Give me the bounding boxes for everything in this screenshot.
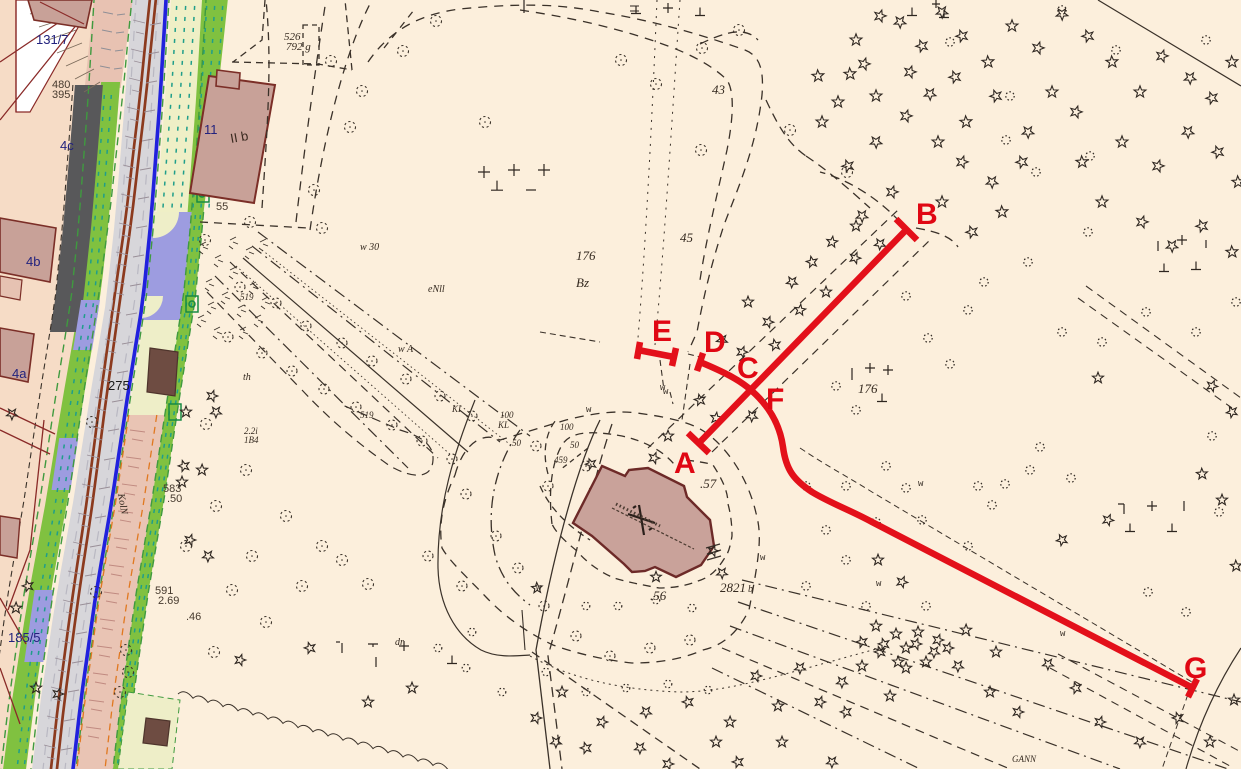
svg-text:eNll: eNll: [428, 284, 445, 295]
svg-text:1B4: 1B4: [244, 435, 259, 445]
svg-text:50: 50: [512, 438, 522, 448]
svg-text:w: w: [876, 579, 882, 589]
svg-text:55: 55: [216, 201, 228, 213]
svg-text:C: C: [737, 352, 759, 385]
svg-text:F: F: [766, 383, 784, 416]
svg-text:.56: .56: [650, 588, 667, 603]
svg-text:50: 50: [570, 440, 580, 450]
svg-text:B: B: [916, 198, 938, 231]
svg-text:w: w: [918, 479, 924, 489]
svg-text:2821: 2821: [720, 580, 746, 595]
svg-text:.57: .57: [700, 476, 717, 491]
svg-text:w: w: [536, 583, 542, 593]
svg-text:100: 100: [560, 422, 574, 432]
svg-text:A: A: [674, 447, 696, 480]
svg-text:4b: 4b: [26, 254, 40, 269]
svg-text:w 30: w 30: [360, 242, 379, 253]
svg-text:.46: .46: [186, 611, 201, 623]
svg-text:GANN: GANN: [1012, 754, 1037, 764]
svg-text:D: D: [704, 326, 726, 359]
svg-text:w: w: [586, 405, 592, 415]
svg-text:dr: dr: [395, 637, 404, 648]
svg-text:w: w: [1060, 629, 1066, 639]
svg-text:2.69: 2.69: [158, 595, 179, 607]
svg-text:45: 45: [680, 230, 694, 245]
svg-text:w A: w A: [398, 344, 414, 355]
svg-text:KI: KI: [451, 404, 462, 414]
svg-text:459: 459: [554, 455, 568, 465]
svg-text:43: 43: [712, 82, 726, 97]
svg-text:b: b: [748, 584, 753, 595]
svg-text:131/7: 131/7: [36, 32, 69, 47]
svg-text:176: 176: [576, 248, 596, 263]
svg-text:w: w: [760, 553, 766, 563]
svg-text:519: 519: [360, 410, 374, 420]
svg-text:w: w: [660, 383, 666, 393]
svg-text:4a: 4a: [12, 366, 27, 381]
svg-text:.50: .50: [167, 493, 182, 505]
svg-text:II b: II b: [229, 128, 249, 146]
svg-text:176: 176: [858, 381, 878, 396]
svg-text:th: th: [243, 372, 251, 383]
svg-text:792 g: 792 g: [286, 41, 311, 53]
svg-text:100: 100: [500, 410, 514, 420]
svg-text:KL: KL: [497, 420, 509, 430]
svg-text:4c: 4c: [60, 138, 74, 153]
svg-text:395: 395: [52, 89, 70, 101]
svg-text:185/5: 185/5: [8, 630, 41, 645]
svg-text:519: 519: [240, 292, 254, 302]
svg-text:Bz: Bz: [576, 275, 589, 290]
svg-text:11: 11: [204, 122, 218, 137]
svg-text:G: G: [1184, 652, 1207, 685]
svg-text:275: 275: [108, 378, 130, 393]
svg-text:E: E: [652, 315, 672, 348]
